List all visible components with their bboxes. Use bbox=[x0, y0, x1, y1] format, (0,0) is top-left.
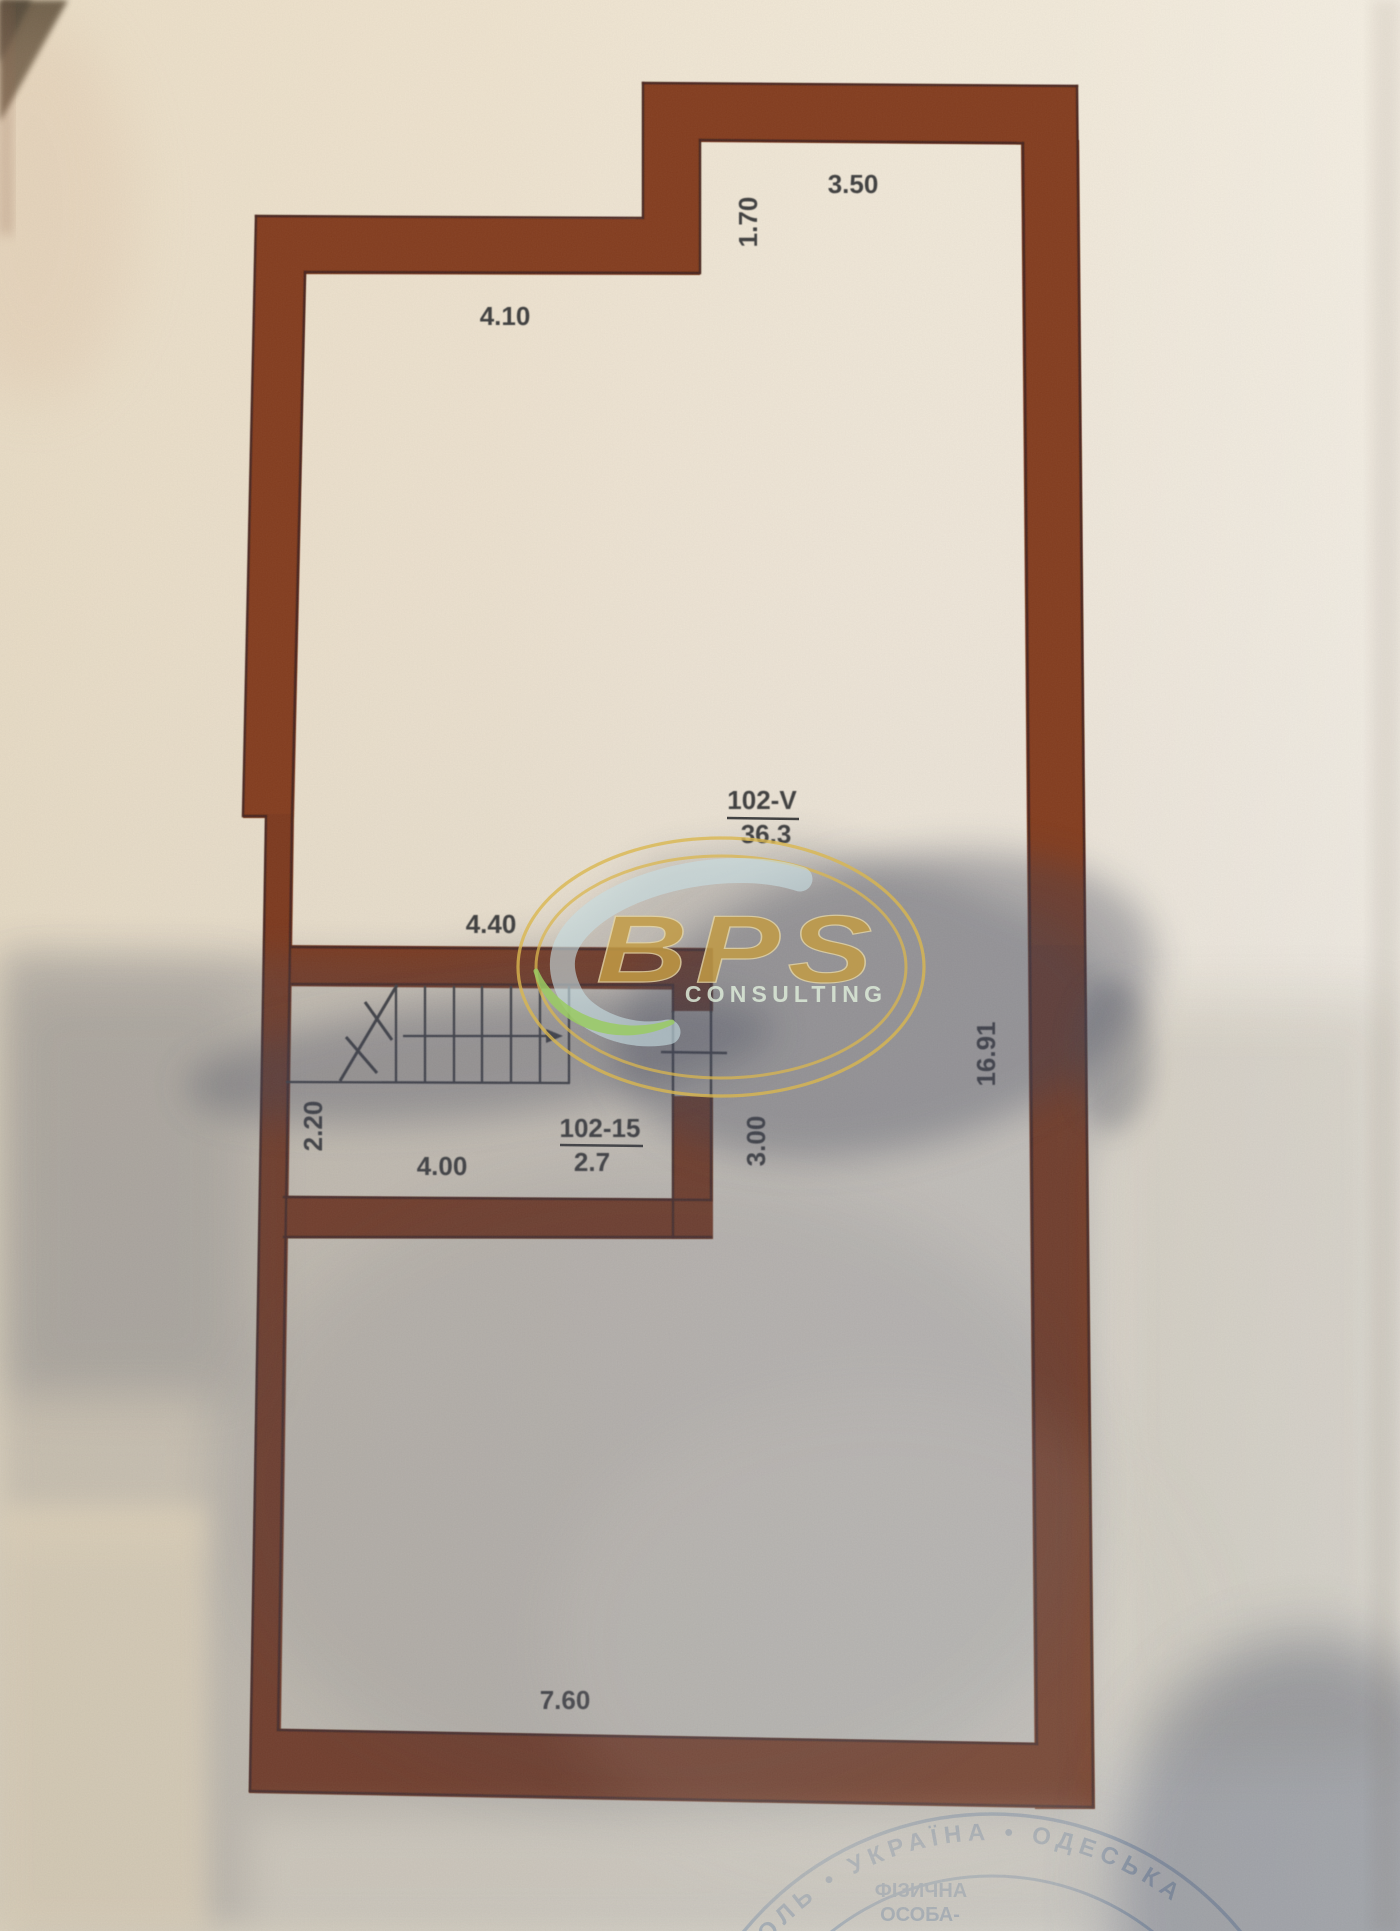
svg-text:CONSULTING: CONSULTING bbox=[685, 981, 887, 1007]
